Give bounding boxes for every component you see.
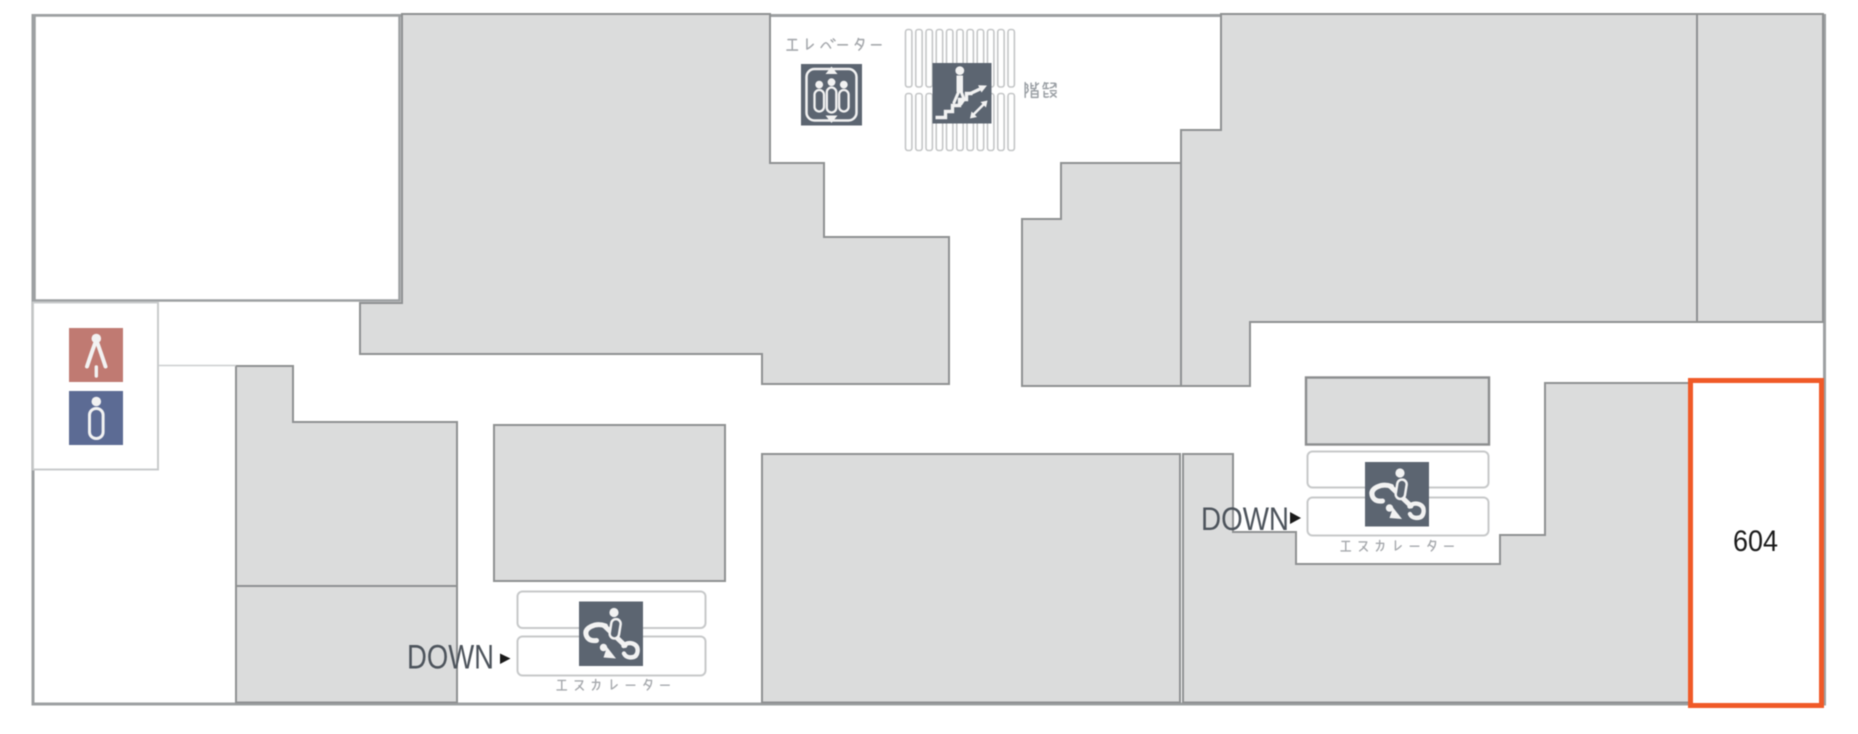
svg-text:604: 604 xyxy=(1733,525,1778,558)
svg-text:DOWN: DOWN xyxy=(407,639,494,677)
svg-text:DOWN: DOWN xyxy=(1201,501,1289,537)
